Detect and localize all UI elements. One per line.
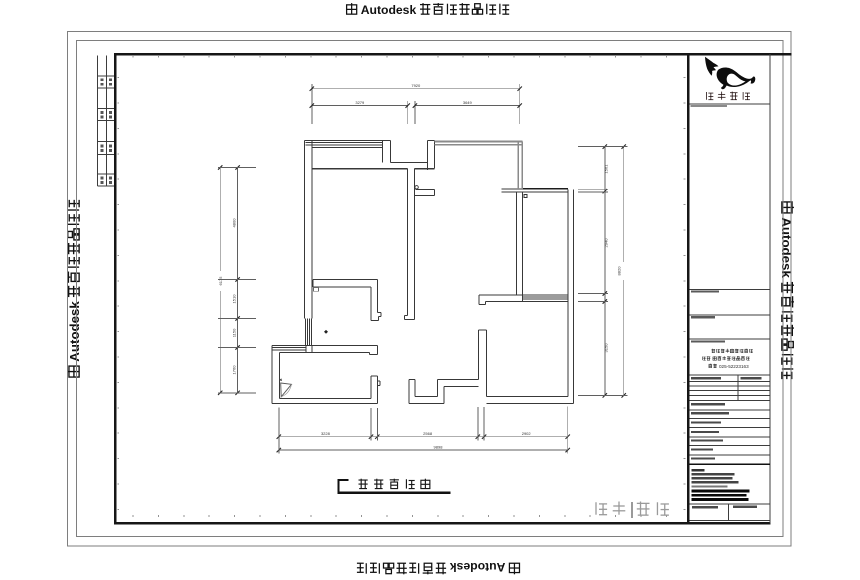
svg-text:025-52223163: 025-52223163: [719, 364, 749, 369]
svg-text:7920: 7920: [411, 83, 421, 88]
svg-text:1760: 1760: [231, 365, 236, 375]
svg-text:3228: 3228: [321, 431, 331, 436]
svg-text:Autodesk: Autodesk: [67, 301, 82, 362]
svg-text:3279: 3279: [355, 100, 365, 105]
svg-text:9898: 9898: [434, 444, 444, 449]
svg-text:2568: 2568: [423, 431, 433, 436]
svg-text:3649: 3649: [463, 100, 473, 105]
svg-text:4800: 4800: [231, 218, 236, 228]
svg-text:1561: 1561: [604, 164, 609, 174]
svg-text:2940: 2940: [604, 238, 609, 248]
svg-text:Autodesk: Autodesk: [450, 560, 506, 574]
svg-text:2902: 2902: [522, 431, 532, 436]
svg-text:Autodesk: Autodesk: [361, 3, 417, 17]
svg-text:8820: 8820: [617, 266, 622, 276]
svg-text:6175: 6175: [218, 276, 223, 286]
svg-text:3150: 3150: [604, 343, 609, 353]
svg-text:1510: 1510: [231, 294, 236, 304]
svg-text:Autodesk: Autodesk: [779, 217, 794, 278]
svg-text:1150: 1150: [231, 328, 236, 337]
